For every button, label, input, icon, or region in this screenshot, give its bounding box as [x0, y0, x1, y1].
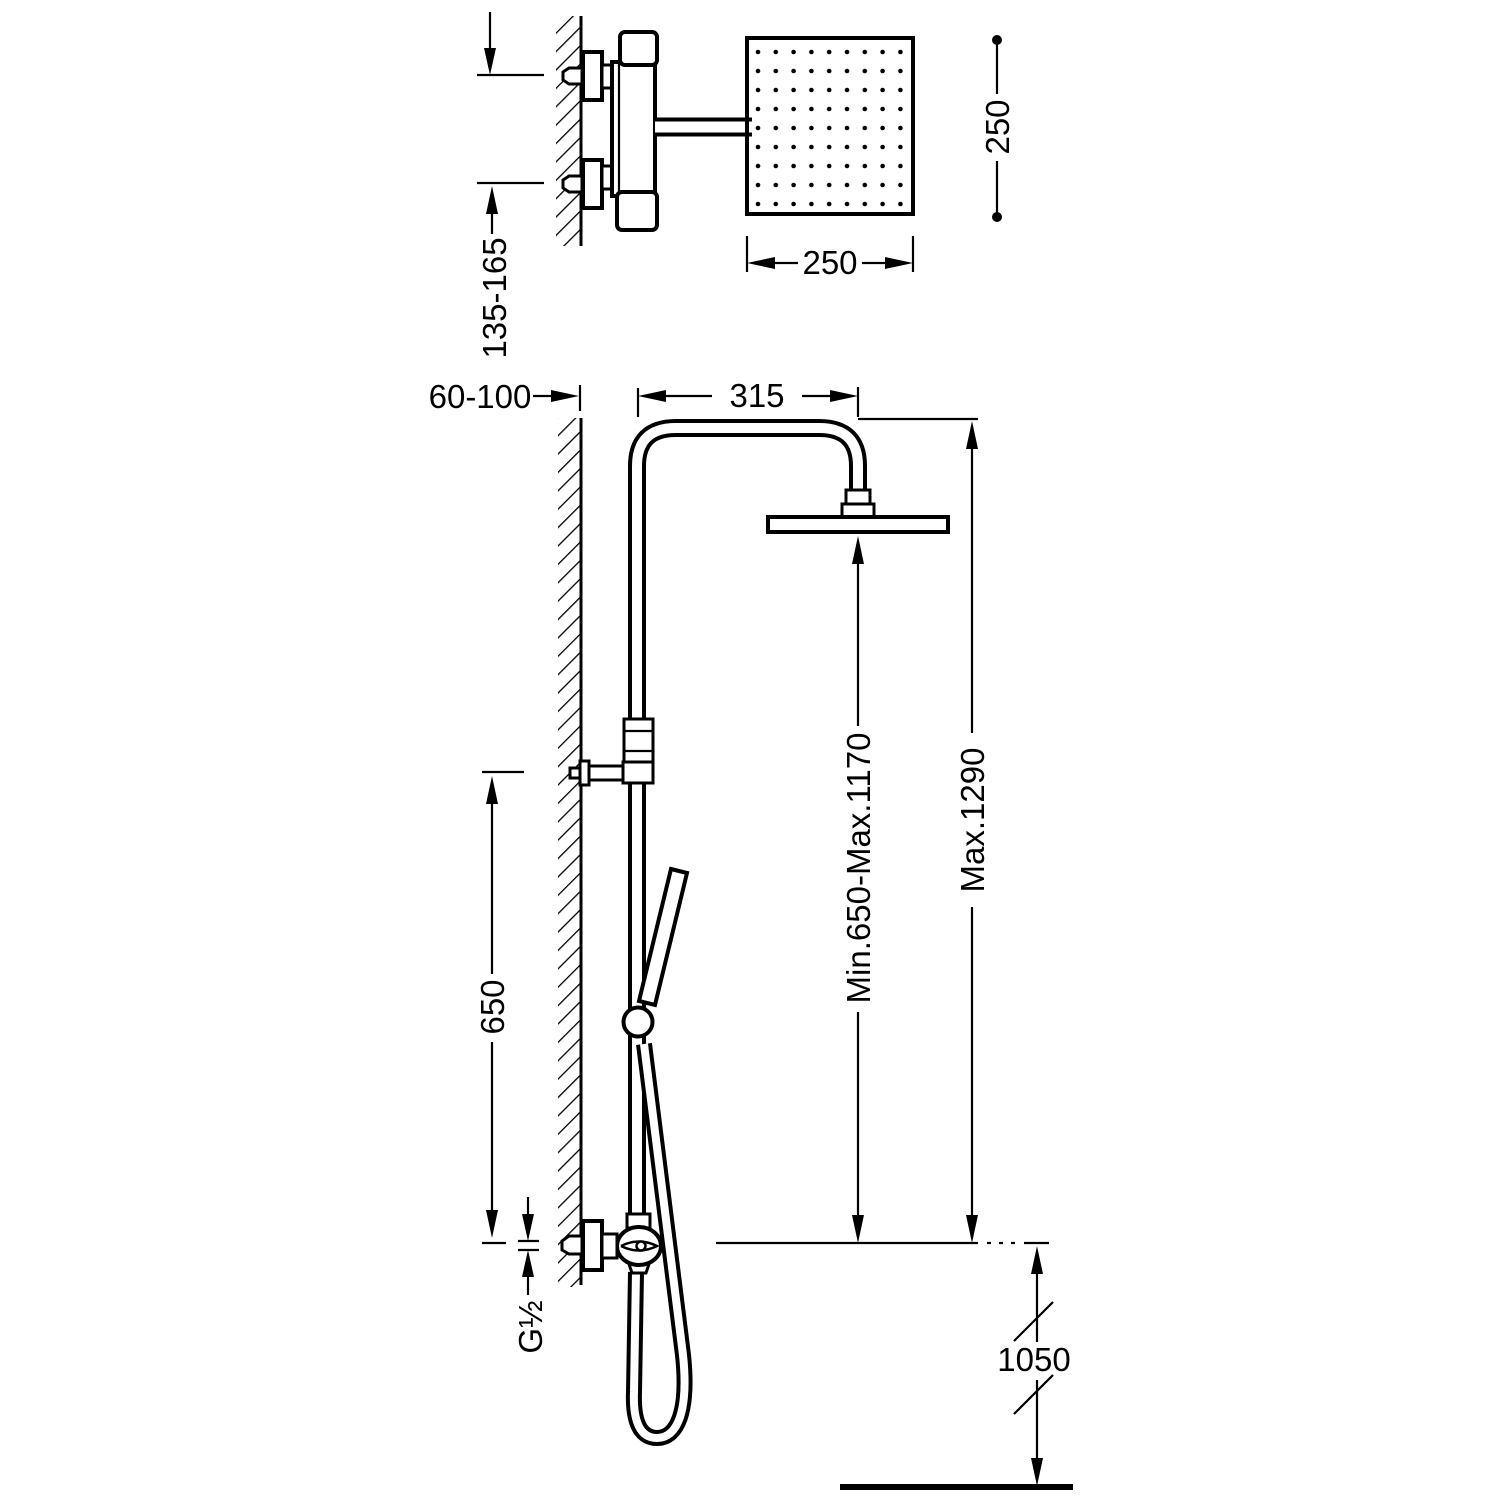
valve-handle-bottom: [617, 192, 657, 230]
head-connector-nut: [846, 490, 870, 504]
arrowhead-up: [522, 1250, 534, 1277]
arrowhead-down: [522, 1214, 534, 1241]
wall-hatch-main-view: [558, 418, 581, 1287]
main-view: [558, 418, 948, 1438]
riser-tube-bore: [637, 428, 858, 1218]
drawing-page: 135-165 250 250: [0, 0, 1500, 1500]
valve-handle-top: [620, 32, 657, 65]
arrowhead-left: [747, 257, 775, 269]
dim-label-head-width: 250: [802, 244, 857, 281]
dim-label-wall-offset: 60-100: [429, 378, 532, 415]
arrowhead-down: [852, 1215, 864, 1243]
bracket-arm: [589, 766, 624, 780]
slider-holder: [624, 1008, 653, 1037]
dim-dot-top: [992, 35, 1002, 45]
break-mark: [1014, 1302, 1053, 1341]
arrowhead-right: [551, 390, 579, 402]
dim-label-head-height: Min.650-Max.1170: [840, 733, 877, 1004]
inlet-screw-top: [563, 68, 582, 84]
top-detail-view: [556, 16, 913, 246]
tube-union: [624, 719, 653, 762]
arrowhead-down: [966, 1215, 978, 1243]
inlet-screw-bottom: [563, 176, 582, 192]
valve-wall-screw: [562, 1236, 582, 1254]
valve-wall-flange: [583, 1221, 602, 1270]
dim-label-head-side: 250: [979, 99, 1016, 154]
dim-label-arm-reach: 315: [729, 377, 784, 414]
escutcheon-top: [583, 52, 602, 100]
dim-dot-bottom: [992, 212, 1002, 222]
arrowhead-right: [830, 390, 858, 402]
arrowhead-down: [1031, 1458, 1043, 1486]
riser-tube-outline: [637, 428, 858, 1218]
arrowhead-down: [486, 1210, 498, 1238]
dim-label-outlet-height: 1050: [997, 1341, 1070, 1378]
hand-shower-handle: [639, 869, 687, 1005]
bracket-tube-clamp: [623, 762, 653, 783]
arrowhead-left: [638, 390, 666, 402]
break-mark: [1014, 1375, 1053, 1414]
escutcheon-bottom: [583, 160, 602, 208]
main-view-dimensions: 60-100 315 Max.1290 Min.650-Max.1170 650: [429, 377, 1073, 1487]
arrowhead-up: [1031, 1246, 1043, 1274]
arrowhead-up: [486, 776, 498, 804]
arrowhead-right: [885, 257, 913, 269]
rain-head-nozzle-grid: [750, 42, 910, 210]
arrowhead-up: [966, 421, 978, 449]
wall-hatch-top-view: [556, 16, 581, 246]
rain-head-plate-side-view: [768, 517, 948, 532]
arrowhead-up: [852, 536, 864, 564]
valve-handle-hub: [637, 1242, 646, 1251]
dim-label-thread: G½: [512, 1300, 549, 1353]
arrowhead-down: [484, 48, 496, 75]
shower-column-technical-drawing: 135-165 250 250: [0, 0, 1500, 1500]
valve-inlet-connector: [602, 1234, 617, 1258]
dim-label-column-height: Max.1290: [954, 748, 991, 893]
arrowhead-up: [486, 186, 498, 214]
dim-label-inlet-spacing: 135-165: [476, 237, 513, 358]
dim-label-slide-bar: 650: [474, 979, 511, 1034]
